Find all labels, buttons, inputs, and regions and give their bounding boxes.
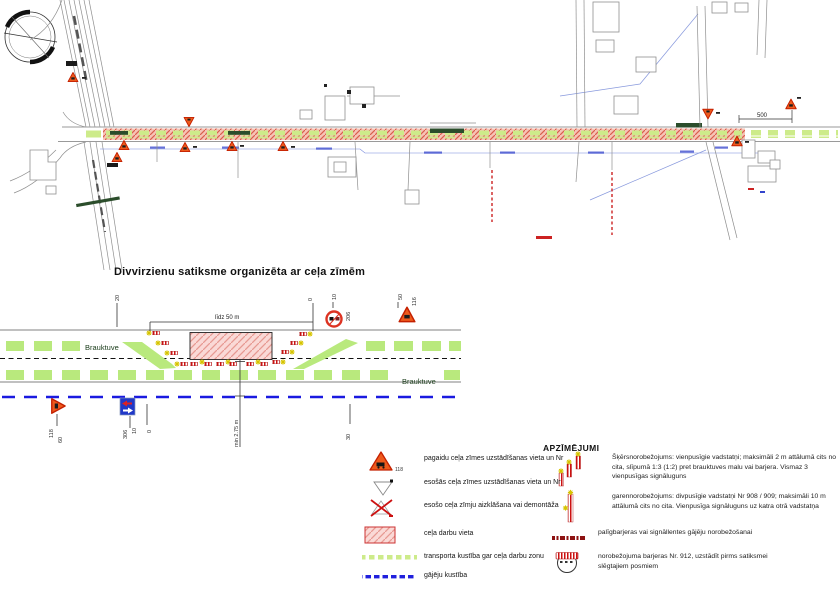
roadworks-sign-number: 118 — [49, 429, 55, 438]
give-way-sign — [184, 117, 194, 126]
tick-30: 30 — [346, 434, 352, 440]
cross-roads — [157, 0, 767, 240]
map-plan: 500 — [4, 0, 840, 270]
direction-board-sign — [66, 61, 77, 66]
road-narrows-sign — [399, 307, 415, 321]
temporary-sign-triangle-icon — [370, 452, 392, 470]
legend-note: norobežojuma barjeras Nr. 912, uzstādīt … — [598, 552, 798, 571]
utility-lines — [100, 14, 758, 200]
guide-post-single-icon — [563, 490, 573, 522]
legend-item-label: esošo ceļa zīmju aizklāšana vai demontāž… — [424, 502, 559, 509]
tick-10-bottom: 10 — [132, 428, 138, 434]
width-dimension-label: līdz 50 m — [215, 315, 239, 321]
corridor-east-dashes — [745, 130, 838, 138]
height-dimension-label: min 2.75 m — [234, 419, 240, 447]
tick-0: 0 — [308, 298, 314, 301]
left-road — [10, 0, 114, 193]
diagram-title: Divvirzienu satiksme organizēta ar ceļa … — [114, 266, 365, 278]
legend-sample-number: 118 — [395, 467, 403, 473]
direction-board-sign — [107, 163, 118, 167]
priority-sign — [120, 398, 135, 415]
crossed-out-sign-icon — [371, 500, 393, 517]
street-name-label-mark — [76, 196, 120, 207]
red-dashed-markers — [492, 170, 765, 239]
barrier-912-icon — [556, 553, 578, 573]
plan-drawing-canvas: 500 — [0, 0, 840, 608]
warning-sign — [786, 99, 796, 109]
corridor-start-dash — [86, 131, 101, 138]
warning-sign — [180, 142, 190, 151]
legend-item-label: pagaidu ceļa zīmes uzstādīšanas vieta un… — [424, 455, 563, 462]
tick-60: 60 — [58, 437, 64, 443]
green-dashed-swatch — [362, 555, 417, 560]
tick-10: 10 — [332, 294, 338, 300]
legend-note: palīgbarjeras vai signāllentes gājēju no… — [598, 528, 773, 538]
warning-sign — [227, 141, 237, 150]
work-zone-area — [190, 333, 272, 360]
detail-diagram: līdz 50 m 20 0 10 50 206 116 118 60 — [0, 294, 461, 447]
tick-0-bottom: 0 — [147, 430, 153, 433]
merge-arrow-down — [122, 342, 176, 369]
maroon-dashed-icon — [552, 536, 586, 540]
longitudinal-posts — [191, 359, 268, 365]
warning-sign — [278, 141, 288, 150]
legend-note: Šķērsnorobežojums: vienpusīgie vadstatņi… — [612, 453, 840, 482]
legend-title: APZĪMĒJUMI — [543, 443, 599, 453]
lane-label-top: Brauktuve — [85, 343, 119, 352]
diagram-ticks-top — [117, 302, 398, 327]
map-dimension-500: 500 — [739, 110, 792, 123]
legend-item-label: ceļa darbu vieta — [424, 530, 473, 537]
work-area-swatch — [365, 527, 395, 543]
triangle-sign-number: 116 — [412, 297, 418, 306]
tick-50: 50 — [398, 294, 404, 300]
north-compass-icon — [4, 12, 57, 62]
priority-sign-number: 306 — [123, 430, 129, 439]
map-dimension-label: 500 — [757, 113, 768, 119]
blue-dashed-swatch — [362, 575, 414, 578]
legend-item-label: gājēju kustība — [424, 572, 467, 579]
legend-item-label: esošās ceļa zīmes uzstādīšanas vieta un … — [424, 479, 561, 486]
corridor-traffic-dashes — [106, 131, 742, 139]
warning-sign — [68, 72, 78, 81]
width-dimension: līdz 50 m — [150, 303, 313, 331]
transverse-posts-right — [273, 331, 313, 364]
give-way-sign — [703, 109, 713, 119]
buildings — [30, 2, 780, 204]
traffic-flow-bottom — [6, 370, 460, 380]
lane-label-bottom: Brauktuve — [402, 377, 436, 386]
warning-sign — [112, 152, 122, 161]
legend-note: garennorobežojums: divpusīgie vadstatņi … — [612, 492, 840, 511]
round-sign-number: 206 — [346, 312, 352, 321]
existing-sign-triangle-icon — [374, 480, 393, 496]
legend-item-label: transporta kustība gar ceļa darbu zonu — [424, 553, 544, 560]
traffic-flow-top-right — [293, 339, 461, 369]
roadworks-sign-back — [52, 399, 65, 414]
round-prohibition-sign — [327, 312, 342, 327]
traffic-management-plan-sheet: 500 — [0, 0, 840, 608]
tick-20: 20 — [115, 295, 121, 301]
